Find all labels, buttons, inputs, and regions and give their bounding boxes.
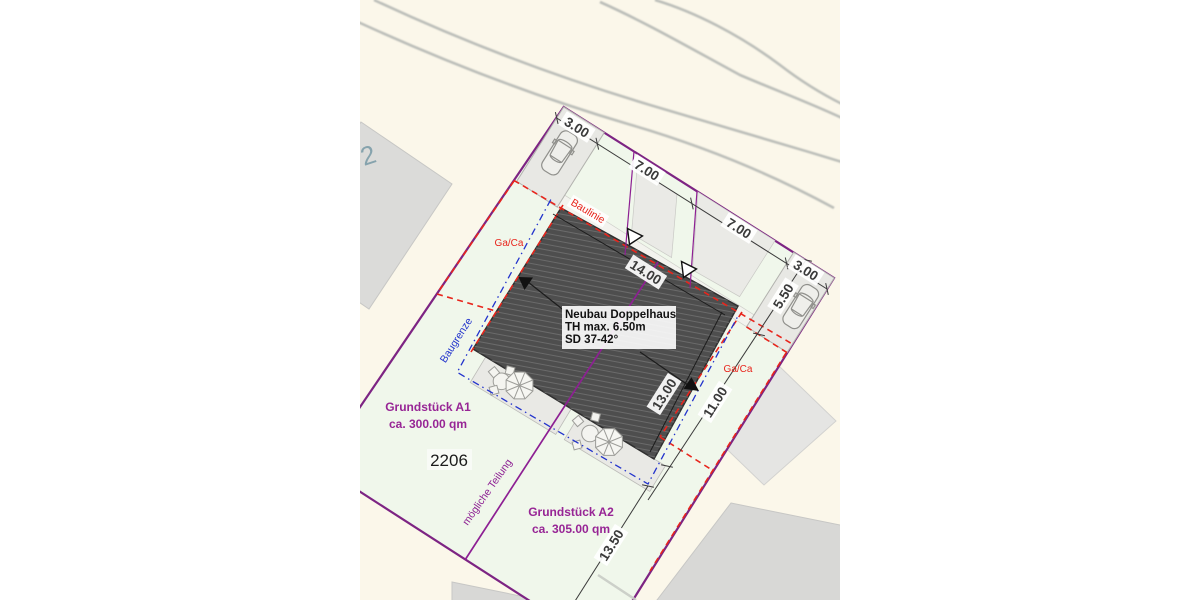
- svg-text:SD 37-42°: SD 37-42°: [565, 334, 619, 346]
- svg-text:ca. 300.00 qm: ca. 300.00 qm: [389, 417, 467, 431]
- svg-text:Ga/Ca: Ga/Ca: [724, 364, 753, 375]
- svg-text:Neubau Doppelhaus: Neubau Doppelhaus: [565, 309, 676, 321]
- svg-text:TH max. 6.50m: TH max. 6.50m: [565, 322, 646, 334]
- svg-text:2206: 2206: [430, 451, 468, 470]
- svg-text:ca. 305.00 qm: ca. 305.00 qm: [532, 522, 610, 536]
- svg-text:Ga/Ca: Ga/Ca: [495, 238, 524, 249]
- svg-text:Grundstück A2: Grundstück A2: [528, 505, 614, 519]
- svg-text:Grundstück A1: Grundstück A1: [385, 400, 471, 414]
